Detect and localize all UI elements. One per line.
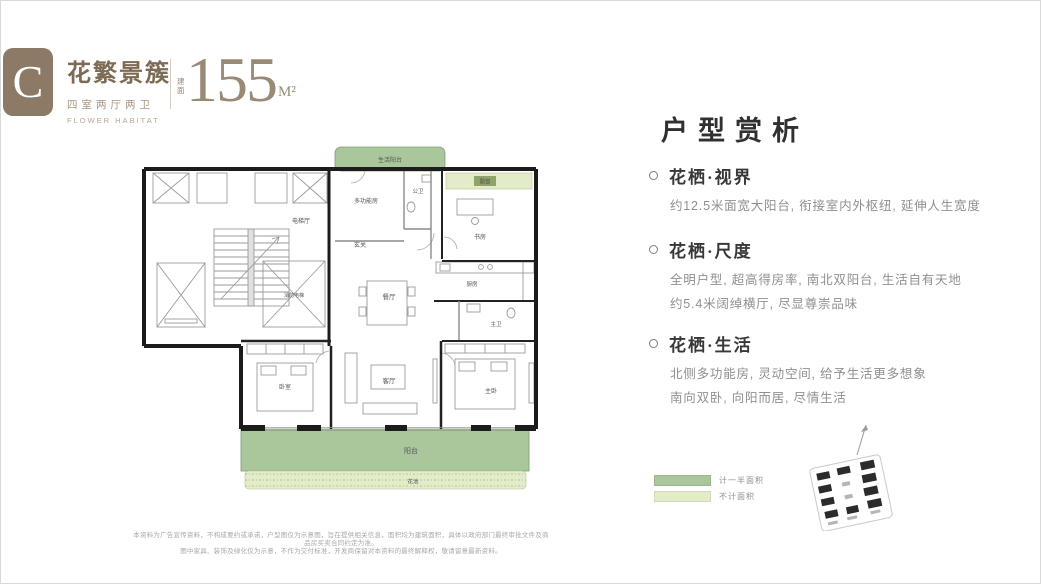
room-label-bedroom: 卧室: [279, 383, 291, 391]
analysis-section-scale: 花栖·尺度 全明户型, 超高得房率, 南北双阳台, 生活自有天地 约5.4米阔绰…: [649, 237, 979, 316]
page-subtitle: 四室两厅两卫: [67, 97, 167, 112]
room-label-flower-bed: 花池: [407, 478, 419, 486]
bullet-circle-icon: [649, 171, 658, 180]
analysis-section-vision: 花栖·视界 约12.5米面宽大阳台, 衔接室内外枢纽, 延伸人生宽度: [649, 163, 979, 218]
room-label-public-bath: 公卫: [412, 188, 424, 195]
disclaimer-line: 图中家具、装饰及绿化仅为示意，不作为交付标准，开发商保留对本资料的最终解释权，敬…: [133, 548, 549, 556]
room-label-balcony: 阳台: [404, 446, 418, 455]
page: C 花繁景簇 四室两厅两卫 FLOWER HABITAT 建面 155 M²: [0, 0, 1041, 584]
section-line: 全明户型, 超高得房率, 南北双阳台, 生活自有天地: [670, 268, 979, 292]
header-title-block: 花繁景簇 四室两厅两卫 FLOWER HABITAT: [67, 53, 167, 125]
page-subtitle-en: FLOWER HABITAT: [67, 116, 167, 125]
room-label-bay-window: 飘窗: [479, 178, 491, 186]
header-divider: [170, 59, 171, 109]
analysis-heading: 户型赏析: [661, 109, 809, 148]
furniture-layer: [153, 173, 536, 414]
bullet-circle-icon: [649, 245, 658, 254]
room-label-living: 客厅: [383, 376, 397, 385]
bullet-circle-icon: [649, 339, 658, 348]
floorplan: 生活阳台 飘窗 多功能房 公卫 玄关 电梯厅 消防电梯 书房 厨房 餐厅 客厅 …: [139, 141, 543, 513]
floorplan-drawing: 生活阳台 飘窗 多功能房 公卫 玄关 电梯厅 消防电梯 书房 厨房 餐厅 客厅 …: [139, 141, 543, 513]
site-map: [806, 419, 896, 531]
area-unit: M²: [278, 84, 296, 101]
legend-label: 计一半面积: [719, 475, 764, 486]
north-arrow-icon: [857, 425, 868, 455]
site-map-card: [809, 454, 893, 531]
unit-type-badge: C: [3, 48, 53, 116]
page-title: 花繁景簇: [67, 53, 167, 88]
room-label-dining: 餐厅: [383, 292, 397, 301]
room-label-life-balcony: 生活阳台: [378, 156, 402, 164]
room-label-master-bedroom: 主卧: [485, 387, 497, 395]
disclaimer: 本资料为广告宣传资料，不构成要约或承诺，户型图仅为示意图，旨在提供相关信息，面积…: [133, 532, 549, 556]
disclaimer-line: 本资料为广告宣传资料，不构成要约或承诺，户型图仅为示意图，旨在提供相关信息，面积…: [133, 532, 549, 548]
room-label-kitchen: 厨房: [466, 280, 478, 288]
section-line: 约5.4米阔绰横厅, 尽显尊崇品味: [670, 292, 979, 316]
area-legend: 计一半面积 不计面积: [654, 475, 764, 507]
section-line: 南向双卧, 向阳而居, 尽情生活: [670, 386, 979, 410]
legend-swatch-light-green: [654, 491, 711, 502]
legend-item-no-area: 不计面积: [654, 491, 764, 502]
area-prefix-label: 建面: [177, 77, 186, 95]
section-title: 花栖·尺度: [669, 237, 753, 262]
analysis-section-life: 花栖·生活 北侧多功能房, 灵动空间, 给予生活更多想象 南向双卧, 向阳而居,…: [649, 331, 979, 410]
legend-item-half-area: 计一半面积: [654, 475, 764, 486]
outer-walls: [144, 169, 536, 429]
legend-swatch-dark-green: [654, 475, 711, 486]
bottom-window-wall: [241, 425, 536, 431]
section-line: 约12.5米面宽大阳台, 衔接室内外枢纽, 延伸人生宽度: [670, 194, 979, 218]
section-title: 花栖·视界: [669, 163, 753, 188]
room-label-study: 书房: [474, 233, 486, 241]
area-block: 建面 155 M²: [177, 51, 296, 109]
area-value: 155: [186, 51, 276, 109]
site-map-drawing: [806, 419, 896, 531]
room-label-master-bath: 主卫: [490, 320, 502, 328]
section-line: 北侧多功能房, 灵动空间, 给予生活更多想象: [670, 362, 979, 386]
room-label-foyer: 玄关: [354, 241, 366, 249]
legend-label: 不计面积: [719, 491, 755, 502]
room-label-elevator-hall: 电梯厅: [292, 217, 310, 225]
section-title: 花栖·生活: [669, 331, 753, 356]
green-areas: [241, 147, 532, 489]
room-label-multi-function: 多功能房: [354, 197, 378, 205]
room-label-fire-elevator: 消防电梯: [284, 292, 304, 299]
